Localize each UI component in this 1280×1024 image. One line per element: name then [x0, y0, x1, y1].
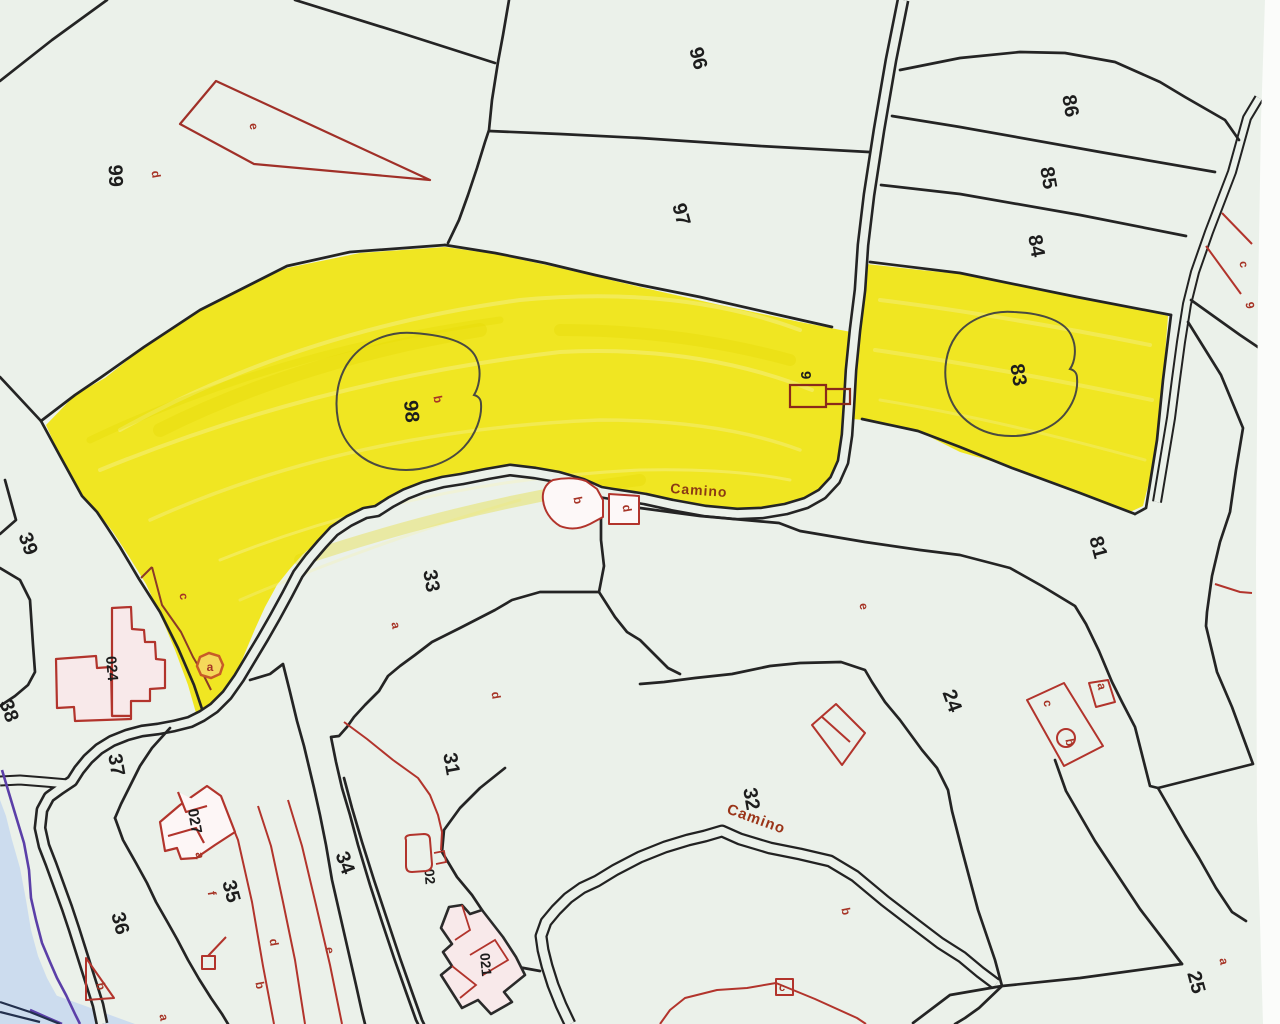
- svg-text:33: 33: [418, 568, 444, 594]
- svg-text:86: 86: [1057, 93, 1083, 119]
- svg-text:a: a: [207, 660, 214, 674]
- svg-text:024: 024: [102, 655, 121, 682]
- svg-text:83: 83: [1005, 362, 1031, 388]
- svg-text:9: 9: [797, 371, 814, 379]
- svg-text:31: 31: [438, 751, 464, 777]
- svg-text:021: 021: [477, 952, 495, 977]
- svg-text:98: 98: [399, 399, 423, 423]
- svg-text:c: c: [779, 982, 785, 994]
- svg-text:99: 99: [104, 164, 127, 187]
- svg-text:37: 37: [103, 752, 129, 778]
- svg-text:85: 85: [1035, 165, 1061, 191]
